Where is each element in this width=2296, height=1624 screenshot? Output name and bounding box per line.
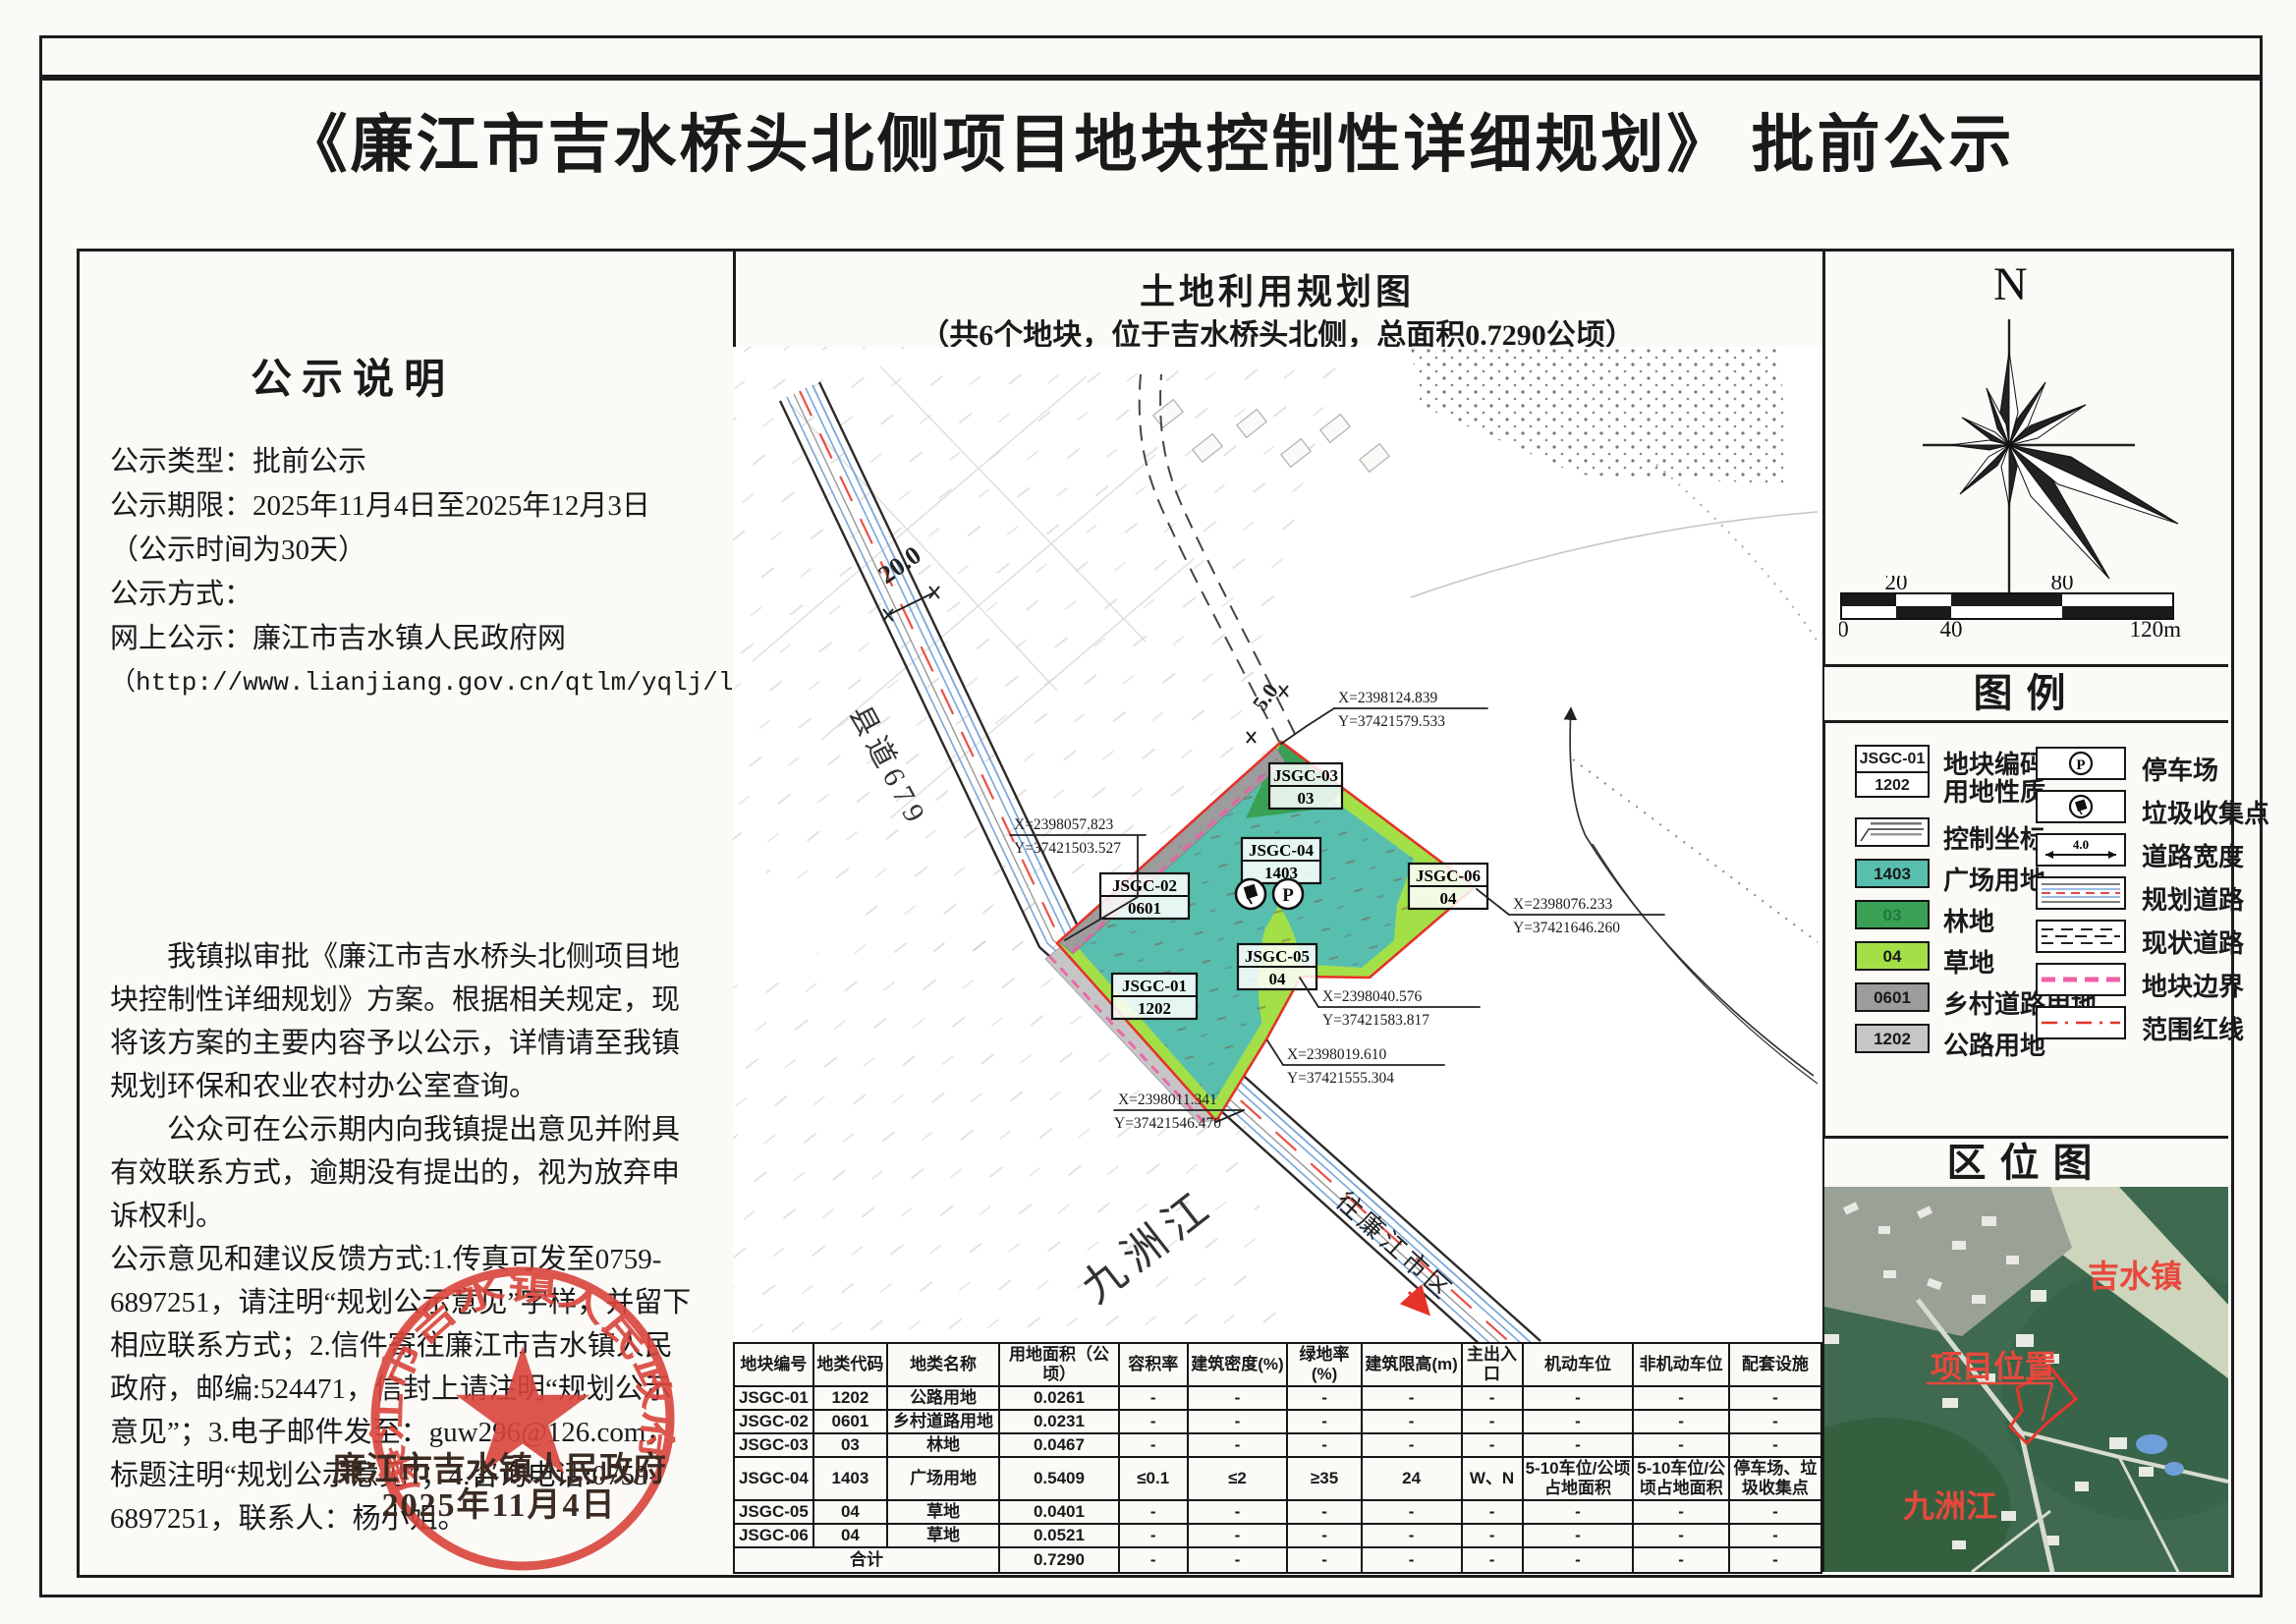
notice-method-line: 公示方式： <box>110 573 696 617</box>
coord-x: X=2398057.823 <box>1014 816 1114 833</box>
table-cell: - <box>1523 1524 1634 1547</box>
control-coord-icon <box>1857 819 1928 845</box>
table-cell: - <box>1523 1410 1634 1433</box>
pond <box>2136 1434 2167 1454</box>
legend-control-coord-label: 控制坐标 <box>1943 819 2045 856</box>
parcel-id: JSGC-02 <box>1112 876 1177 895</box>
table-header-cell: 绿地率(%) <box>1287 1343 1361 1386</box>
legend-forest-label: 林地 <box>1943 902 1994 938</box>
table-header-cell: 容积率 <box>1119 1343 1188 1386</box>
parcel-boundary-icon <box>2038 965 2124 994</box>
scale-tick-40: 40 <box>1940 617 1963 639</box>
table-cell: 0601 <box>813 1410 887 1433</box>
table-header-cell: 配套设施 <box>1729 1343 1821 1386</box>
map-title: 土地利用规划图 <box>747 263 1808 314</box>
garbage-collection-icon <box>2038 792 2124 821</box>
table-cell: JSGC-05 <box>734 1500 813 1524</box>
coord-y: Y=37421579.533 <box>1338 713 1445 730</box>
parking-icon: P <box>1273 879 1303 909</box>
table-cell: 乡村道路用地 <box>887 1410 999 1433</box>
table-cell: ≤0.1 <box>1119 1457 1188 1500</box>
parcel-label-jsgc01: JSGC-01 1202 <box>1112 974 1197 1019</box>
scale-tick-120: 120m <box>2130 617 2182 639</box>
notice-url-line: （http://www.lianjiang.gov.cn/qtlm/yqlj/l… <box>110 661 696 705</box>
scale-tick-80: 80 <box>2051 576 2074 594</box>
coord-x: X=2398076.233 <box>1513 896 1613 913</box>
coord-x: X=2398124.839 <box>1338 690 1438 706</box>
legend-parking-symbol: P <box>2036 747 2126 780</box>
table-cell: - <box>1287 1547 1361 1573</box>
table-cell: - <box>1729 1524 1821 1547</box>
table-cell: JSGC-06 <box>734 1524 813 1547</box>
legend-sample-use: 1202 <box>1857 773 1928 798</box>
scale-tick-20: 20 <box>1885 576 1908 594</box>
table-cell: - <box>1362 1500 1462 1524</box>
table-row: JSGC-020601乡村道路用地0.0231-------- <box>734 1410 1821 1433</box>
table-cell: - <box>1362 1524 1462 1547</box>
site-label: 项目位置 <box>1931 1349 2056 1384</box>
parcel-id: JSGC-04 <box>1249 841 1315 860</box>
legend-parcel-boundary-label: 地块边界 <box>2142 967 2244 1003</box>
table-cell: - <box>1287 1500 1361 1524</box>
table-header-row: 地块编号地类代码地类名称用地面积（公顷）容积率建筑密度(%)绿地率(%)建筑限高… <box>734 1343 1821 1386</box>
table-cell: - <box>1633 1386 1728 1410</box>
legend-planned-road-symbol <box>2036 876 2126 910</box>
legend-land-use-label: 用地性质 <box>1943 772 2045 809</box>
table-cell: 0.0261 <box>999 1386 1119 1410</box>
location-header: 区位图 <box>1824 1136 2228 1191</box>
table-cell: - <box>1362 1547 1462 1573</box>
coord-x: X=2398019.610 <box>1287 1046 1387 1063</box>
table-cell: - <box>1362 1433 1462 1457</box>
planned-road-icon <box>2038 878 2124 908</box>
coord-y: Y=37421503.527 <box>1014 840 1121 857</box>
red-line-icon <box>2038 1008 2124 1037</box>
north-label: N <box>1993 258 2028 310</box>
legend-code: 1202 <box>1874 1030 1911 1048</box>
legend-parcel-boundary-symbol <box>2036 963 2126 996</box>
table-cell: - <box>1729 1500 1821 1524</box>
table-cell: - <box>1188 1500 1288 1524</box>
table-cell: 5-10车位/公顷占地面积 <box>1523 1457 1634 1500</box>
table-cell: - <box>1633 1524 1728 1547</box>
table-cell: - <box>1119 1500 1188 1524</box>
parcel-code: 04 <box>1440 889 1458 908</box>
table-cell: - <box>1287 1410 1361 1433</box>
table-cell: W、N <box>1462 1457 1523 1500</box>
parcel-code: 03 <box>1298 789 1315 808</box>
table-header-cell: 地类名称 <box>887 1343 999 1386</box>
parking-glyph: P <box>1282 885 1294 906</box>
official-seal: 廉江市吉水镇人民政府 <box>346 1250 700 1589</box>
table-cell: 0.0521 <box>999 1524 1119 1547</box>
legend-code: 03 <box>1883 906 1902 924</box>
table-cell: 草地 <box>887 1500 999 1524</box>
table-cell: - <box>1633 1410 1728 1433</box>
coord-y: Y=37421646.260 <box>1513 920 1620 936</box>
table-header-cell: 非机动车位 <box>1633 1343 1728 1386</box>
table-cell: 24 <box>1362 1457 1462 1500</box>
notice-paragraph-1: 我镇拟审批《廉江市吉水桥头北侧项目地块控制性详细规划》方案。根据相关规定，现将该… <box>110 935 696 1108</box>
legend-highway-label: 公路用地 <box>1943 1026 2045 1062</box>
legend-control-coord-symbol <box>1855 817 1930 847</box>
legend-code-sample: JSGC-01 1202 <box>1855 745 1930 798</box>
table-cell: ≥35 <box>1287 1457 1361 1500</box>
table-cell: - <box>1362 1386 1462 1410</box>
table-body: JSGC-011202公路用地0.0261--------JSGC-020601… <box>734 1386 1821 1573</box>
stamp-date: 2025年11月4日 <box>332 1478 666 1526</box>
table-cell: - <box>1188 1410 1288 1433</box>
scale-bar: 20 80 0 40 120m <box>1839 576 2185 639</box>
parking-glyph: P <box>2076 757 2085 773</box>
table-cell: - <box>1188 1547 1288 1573</box>
table-cell: - <box>1287 1524 1361 1547</box>
legend-road-width-label: 道路宽度 <box>2142 837 2244 873</box>
coord-y: Y=37421555.304 <box>1287 1070 1394 1087</box>
table-header-cell: 地类代码 <box>813 1343 887 1386</box>
table-cell: 0.0231 <box>999 1410 1119 1433</box>
table-header-cell: 建筑限高(m) <box>1362 1343 1462 1386</box>
table-cell: - <box>1119 1410 1188 1433</box>
parcel-id: JSGC-01 <box>1122 977 1187 995</box>
table-cell: - <box>1119 1524 1188 1547</box>
table-cell: - <box>1119 1433 1188 1457</box>
table-cell: 停车场、垃圾收集点 <box>1729 1457 1821 1500</box>
table-header-cell: 主出入口 <box>1462 1343 1523 1386</box>
top-rule <box>39 75 2260 81</box>
parcel-id: JSGC-05 <box>1245 947 1310 966</box>
notice-type-line: 公示类型：批前公示 <box>110 440 696 484</box>
legend-plaza-swatch: 1403 <box>1855 859 1930 888</box>
coord-x: X=2398011.341 <box>1118 1092 1217 1108</box>
pond <box>2164 1462 2184 1476</box>
parcel-label-jsgc03: JSGC-03 03 <box>1269 763 1342 809</box>
parcel-code: 1202 <box>1138 999 1171 1018</box>
legend-code: 04 <box>1883 947 1902 966</box>
notice-period-line: 公示期限：2025年11月4日至2025年12月3日（公示时间为30天） <box>110 484 696 573</box>
scale-segments <box>1841 593 2173 619</box>
town-label: 吉水镇 <box>2088 1259 2182 1294</box>
table-cell: JSGC-04 <box>734 1457 813 1500</box>
table-cell: - <box>1523 1547 1634 1573</box>
legend-road-width-symbol: 4.0 <box>2036 833 2126 867</box>
parcel-label-jsgc06: JSGC-06 04 <box>1409 864 1487 909</box>
table-cell: - <box>1287 1433 1361 1457</box>
table-row: JSGC-0303林地0.0467-------- <box>734 1433 1821 1457</box>
page-title: 《廉江市吉水桥头北侧项目地块控制性详细规划》 批前公示 <box>79 94 2220 185</box>
legend-garbage-label: 垃圾收集点 <box>2142 794 2269 830</box>
table-cell: - <box>1633 1500 1728 1524</box>
legend-grass-label: 草地 <box>1943 943 1994 980</box>
table-cell: - <box>1462 1524 1523 1547</box>
legend-header: 图例 <box>1824 664 2228 723</box>
table-cell: - <box>1188 1524 1288 1547</box>
notice-heading: 公示说明 <box>251 346 455 406</box>
coord-x: X=2398040.576 <box>1322 988 1423 1005</box>
table-row: JSGC-0604草地0.0521-------- <box>734 1524 1821 1547</box>
table-row: JSGC-011202公路用地0.0261-------- <box>734 1386 1821 1410</box>
location-map: 吉水镇 项目位置 九洲江 <box>1824 1187 2228 1572</box>
table-cell: 04 <box>813 1500 887 1524</box>
legend-forest-swatch: 03 <box>1855 900 1930 929</box>
scale-labels-top: 20 80 <box>1885 576 2074 594</box>
table-cell: - <box>1119 1547 1188 1573</box>
parking-icon: P <box>2038 749 2124 778</box>
parcel-id: JSGC-03 <box>1273 766 1338 785</box>
parcel-id: JSGC-06 <box>1416 867 1481 885</box>
table-cell: 0.0467 <box>999 1433 1119 1457</box>
notice-page: 《廉江市吉水桥头北侧项目地块控制性详细规划》 批前公示 公示说明 公示类型：批前… <box>0 0 2296 1624</box>
compass-petals <box>1950 352 2178 579</box>
table-cell: - <box>1523 1433 1634 1457</box>
table-cell: 5-10车位/公顷占地面积 <box>1633 1457 1728 1500</box>
table-cell: - <box>1462 1547 1523 1573</box>
table-cell: 0.7290 <box>999 1547 1119 1573</box>
table-cell: 广场用地 <box>887 1457 999 1500</box>
table-cell: - <box>1462 1410 1523 1433</box>
table-cell: JSGC-02 <box>734 1410 813 1433</box>
table-cell: 0.5409 <box>999 1457 1119 1500</box>
table-cell: - <box>1729 1410 1821 1433</box>
table-cell: JSGC-01 <box>734 1386 813 1410</box>
table-cell: - <box>1462 1433 1523 1457</box>
legend-highway-swatch: 1202 <box>1855 1024 1930 1053</box>
table-cell: - <box>1633 1547 1728 1573</box>
table-cell: - <box>1287 1386 1361 1410</box>
legend-village-road-swatch: 0601 <box>1855 982 1930 1012</box>
table-cell: ≤2 <box>1188 1457 1288 1500</box>
notice-info: 公示类型：批前公示 公示期限：2025年11月4日至2025年12月3日（公示时… <box>110 440 696 705</box>
table-cell: 1403 <box>813 1457 887 1500</box>
legend-garbage-symbol <box>2036 790 2126 823</box>
scale-labels-bottom: 0 40 120m <box>1839 617 2181 639</box>
road-width-value: 4.0 <box>2073 837 2089 852</box>
legend-grass-swatch: 04 <box>1855 941 1930 971</box>
river-label: 九洲江 <box>1903 1488 1997 1524</box>
table-cell: - <box>1462 1386 1523 1410</box>
table-row: JSGC-0504草地0.0401-------- <box>734 1500 1821 1524</box>
scale-tick-0: 0 <box>1839 617 1849 639</box>
legend-red-line-label: 范围红线 <box>2142 1010 2244 1046</box>
table-cell: - <box>1523 1500 1634 1524</box>
table-cell: - <box>1188 1386 1288 1410</box>
table-cell: JSGC-03 <box>734 1433 813 1457</box>
coord-y: Y=37421546.470 <box>1114 1115 1221 1132</box>
table-cell: 1202 <box>813 1386 887 1410</box>
table-cell: - <box>1362 1410 1462 1433</box>
road-width-icon: 4.0 <box>2038 835 2124 865</box>
land-use-map: 20.0 县道679 5.0 <box>733 347 1822 1342</box>
parcel-code: 0601 <box>1128 899 1161 918</box>
table-cell: - <box>1523 1386 1634 1410</box>
existing-road-icon <box>2038 922 2124 951</box>
parcel-code: 04 <box>1269 970 1287 988</box>
table-header-cell: 建筑密度(%) <box>1188 1343 1288 1386</box>
coord-y: Y=37421583.817 <box>1322 1012 1429 1029</box>
table-cell: - <box>1633 1433 1728 1457</box>
legend-planned-road-label: 规划道路 <box>2142 880 2244 917</box>
legend-plaza-label: 广场用地 <box>1943 861 2045 897</box>
legend-code: 1403 <box>1874 865 1911 883</box>
notice-online-line: 网上公示：廉江市吉水镇人民政府网 <box>110 617 696 661</box>
legend-sample-id: JSGC-01 <box>1857 747 1928 773</box>
legend-code: 0601 <box>1874 988 1911 1007</box>
table-header-cell: 用地面积（公顷） <box>999 1343 1119 1386</box>
table-cell: 林地 <box>887 1433 999 1457</box>
table-cell: - <box>1729 1386 1821 1410</box>
table-cell: 03 <box>813 1433 887 1457</box>
table-cell: 04 <box>813 1524 887 1547</box>
parcel-label-jsgc04: JSGC-04 1403 <box>1242 838 1320 883</box>
table-total-row: 合计0.7290-------- <box>734 1547 1821 1573</box>
table-header-cell: 地块编号 <box>734 1343 813 1386</box>
table-cell: 公路用地 <box>887 1386 999 1410</box>
notice-paragraph-2: 公众可在公示期内向我镇提出意见并附具有效联系方式，逾期没有提出的，视为放弃申诉权… <box>110 1108 696 1238</box>
legend-parking-label: 停车场 <box>2142 751 2218 787</box>
table-cell: - <box>1729 1433 1821 1457</box>
table-cell: 草地 <box>887 1524 999 1547</box>
legend-existing-road-label: 现状道路 <box>2142 924 2244 960</box>
table-cell: - <box>1188 1433 1288 1457</box>
table-cell: 0.0401 <box>999 1500 1119 1524</box>
parcel-label-jsgc05: JSGC-05 04 <box>1238 944 1316 989</box>
parcel-table: 地块编号地类代码地类名称用地面积（公顷）容积率建筑密度(%)绿地率(%)建筑限高… <box>733 1342 1822 1574</box>
table-cell: - <box>1729 1547 1821 1573</box>
table-header-cell: 机动车位 <box>1523 1343 1634 1386</box>
table-cell: - <box>1119 1386 1188 1410</box>
table-row: JSGC-041403广场用地0.5409≤0.1≤2≥3524W、N5-10车… <box>734 1457 1821 1500</box>
legend-existing-road-symbol <box>2036 920 2126 953</box>
garbage-collection-icon <box>1236 879 1265 909</box>
table-cell: - <box>1462 1500 1523 1524</box>
table-total-label: 合计 <box>734 1547 999 1573</box>
legend-red-line-symbol <box>2036 1006 2126 1039</box>
